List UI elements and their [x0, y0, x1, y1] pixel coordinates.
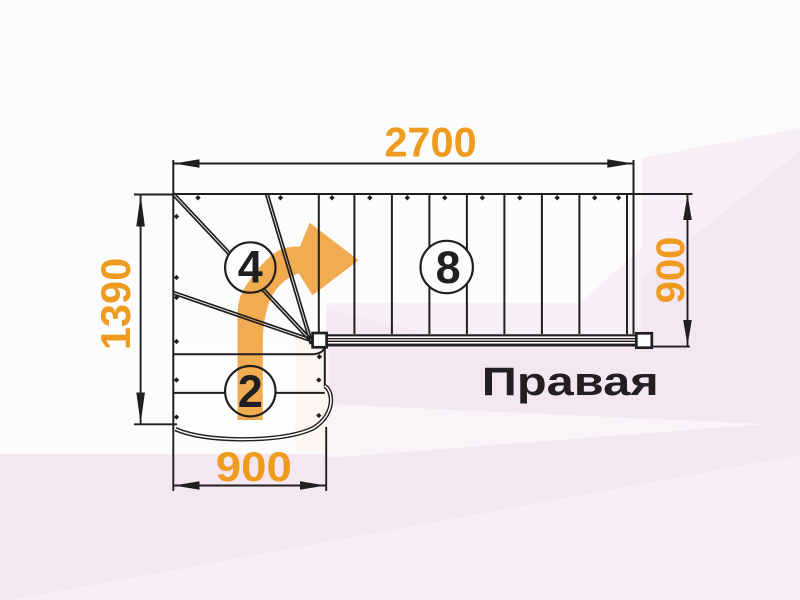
svg-text:Правая: Правая [482, 360, 659, 404]
svg-text:900: 900 [649, 237, 693, 304]
svg-text:2: 2 [238, 366, 263, 417]
svg-text:900: 900 [216, 445, 292, 491]
svg-text:8: 8 [436, 242, 461, 293]
svg-text:1390: 1390 [92, 258, 139, 350]
svg-text:4: 4 [238, 241, 263, 292]
svg-text:2700: 2700 [384, 118, 476, 165]
